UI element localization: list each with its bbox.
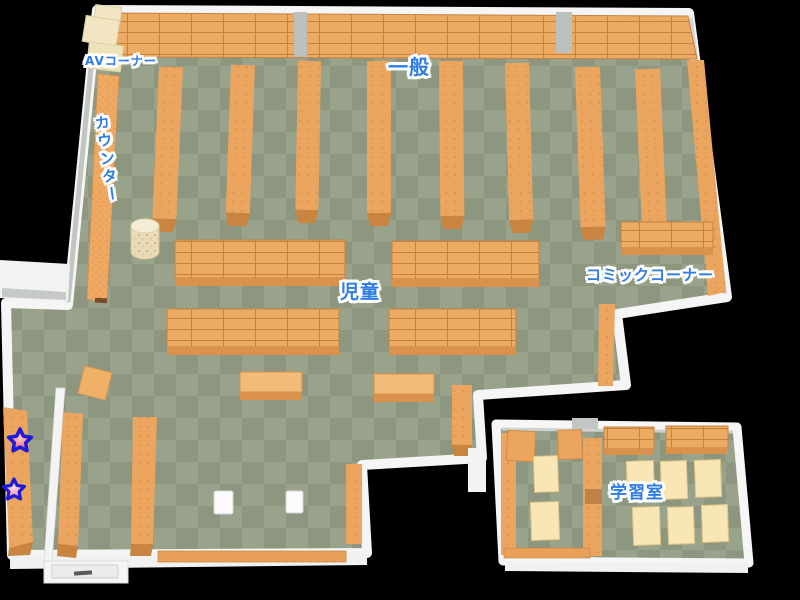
library-floor-map: AVコーナー 一般 カウンター 児童 コミックコーナー 学習室 — [0, 0, 800, 600]
study-room-bottom-wall — [505, 566, 748, 568]
reading-table — [374, 374, 434, 402]
connector-wall — [468, 448, 486, 492]
children-shelf — [389, 309, 516, 355]
label-comic-corner: コミックコーナー — [586, 268, 714, 284]
spinner-rack — [131, 219, 159, 259]
label-av-corner: AVコーナー — [85, 55, 157, 68]
bookshelf-column — [367, 61, 391, 226]
floor-map-canvas — [0, 0, 800, 600]
study-desk — [660, 461, 687, 500]
reading-table — [240, 372, 302, 400]
study-desk — [533, 456, 558, 493]
study-divider-shelf — [583, 438, 602, 556]
bookshelf-column — [295, 61, 321, 223]
study-desk — [701, 505, 728, 543]
step-wall-shelf — [346, 464, 362, 544]
study-top-shelf — [604, 427, 654, 455]
entrance-door — [44, 561, 128, 583]
white-stool — [286, 491, 303, 513]
children-shelf — [175, 240, 345, 286]
east-wall-shelf — [452, 385, 472, 456]
wall-opening — [572, 418, 598, 429]
bookshelf-column — [439, 61, 464, 229]
wall-opening — [556, 12, 572, 53]
study-bottom-shelf — [504, 548, 590, 558]
play-mat — [78, 366, 112, 400]
bookshelf-column — [505, 63, 533, 234]
wall-opening — [294, 12, 307, 57]
label-study-room: 学習室 — [610, 485, 664, 503]
study-desk — [694, 460, 721, 498]
study-desk — [667, 507, 694, 545]
study-shelf-unit — [506, 430, 536, 461]
white-stool — [214, 491, 233, 514]
comic-wall-shelf — [598, 304, 615, 386]
study-shelf-unit — [558, 430, 583, 460]
children-shelf — [167, 309, 339, 355]
bookshelf-column — [130, 417, 157, 556]
label-general: 一般 — [388, 57, 430, 78]
study-desk — [530, 502, 559, 541]
children-shelf — [392, 241, 539, 287]
study-top-shelf — [666, 426, 728, 454]
label-children: 児童 — [340, 283, 380, 303]
top-wall-shelves — [106, 12, 697, 59]
bottom-wall-shelf — [158, 551, 346, 562]
study-desk — [632, 507, 660, 546]
